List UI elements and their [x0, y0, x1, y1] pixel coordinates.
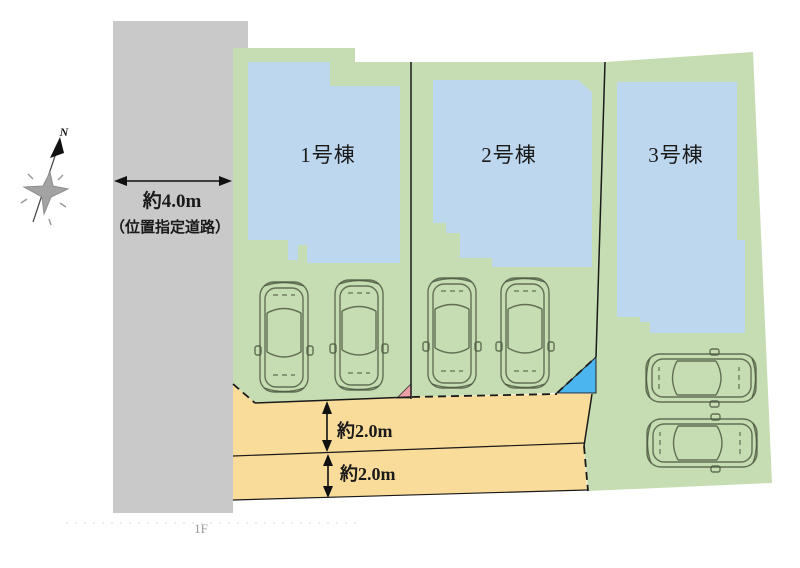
building-3-label: 3号棟 — [648, 143, 704, 167]
floor-label: 1F — [194, 521, 208, 536]
road-width-label: 約4.0m — [142, 189, 202, 212]
alley-width-label-1: 約2.0m — [336, 420, 393, 441]
alley-width-label-2: 約2.0m — [339, 463, 396, 484]
compass-star-icon — [24, 172, 68, 214]
site-plan: 約4.0m （位置指定道路） 1号棟 2号棟 3号棟 約2.0m 約2.0m — [0, 0, 800, 568]
compass-arrowhead — [50, 137, 64, 158]
north-label: N — [59, 125, 70, 139]
building-1-label: 1号棟 — [300, 143, 356, 167]
road-type-label: （位置指定道路） — [110, 218, 230, 236]
building-3-footprint — [617, 82, 745, 333]
road-area — [113, 21, 248, 513]
site-plan-canvas: 約4.0m （位置指定道路） 1号棟 2号棟 3号棟 約2.0m 約2.0m — [0, 0, 800, 568]
building-2-label: 2号棟 — [481, 143, 537, 167]
compass: N — [21, 125, 70, 225]
